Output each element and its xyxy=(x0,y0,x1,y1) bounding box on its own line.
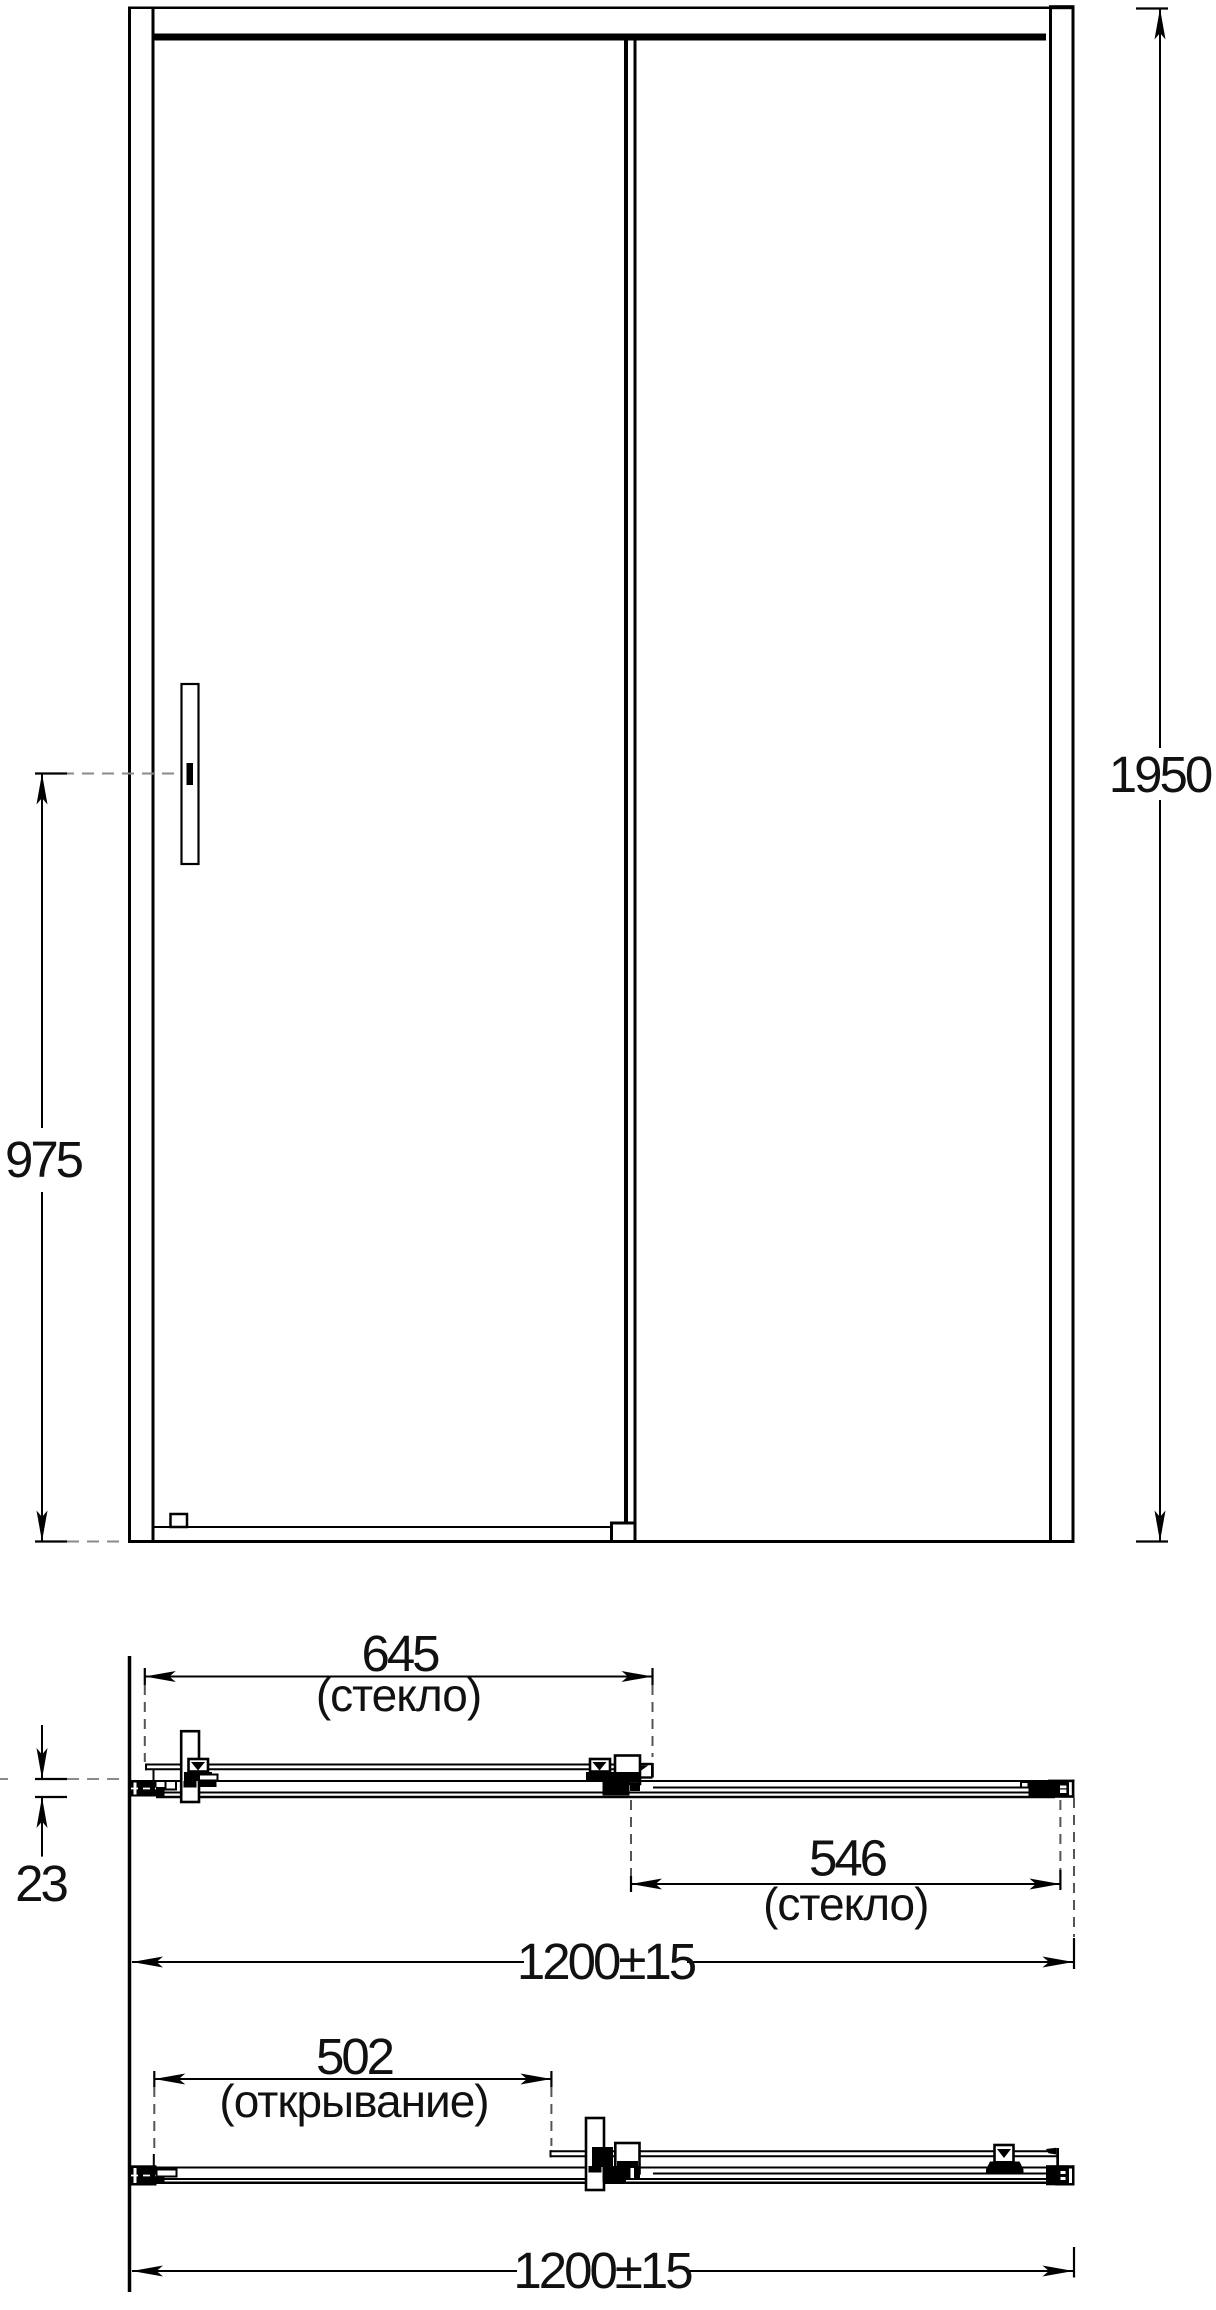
svg-text:(стекло): (стекло) xyxy=(316,1669,481,1721)
svg-text:(стекло): (стекло) xyxy=(763,1878,928,1930)
svg-text:(открывание): (открывание) xyxy=(219,2075,488,2127)
svg-text:1200±15: 1200±15 xyxy=(513,2242,692,2299)
svg-text:975: 975 xyxy=(5,1131,83,1188)
svg-text:1200±15: 1200±15 xyxy=(517,1933,696,1990)
svg-text:23: 23 xyxy=(15,1855,67,1912)
svg-text:1950: 1950 xyxy=(1109,746,1212,803)
